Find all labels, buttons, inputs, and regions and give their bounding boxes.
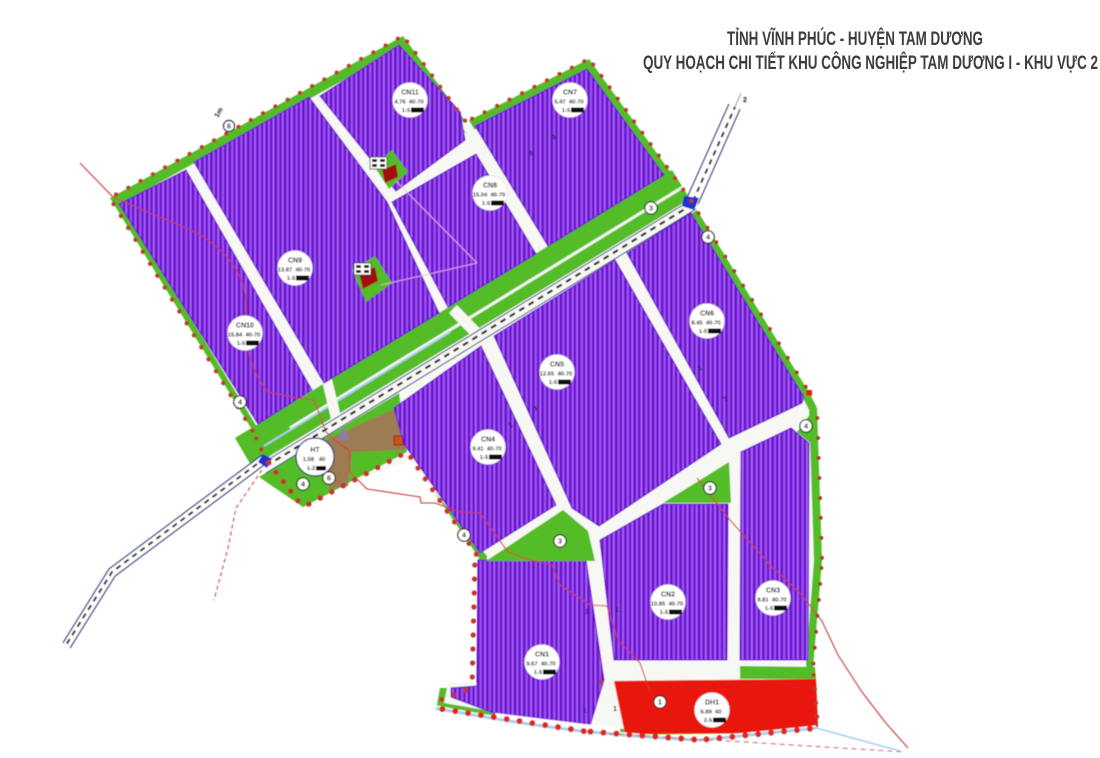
svg-text:9.67 40-70: 9.67 40-70 (526, 662, 555, 668)
svg-text:1-5: 1-5 (402, 108, 411, 114)
svg-text:1-5: 1-5 (549, 380, 558, 386)
svg-text:1-5: 1-5 (237, 341, 246, 347)
svg-text:5.47 40-70: 5.47 40-70 (554, 100, 583, 106)
svg-text:6: 6 (227, 122, 231, 131)
svg-text:3: 3 (649, 204, 653, 213)
svg-text:8.81 40-70: 8.81 40-70 (757, 598, 786, 604)
svg-text:CN9: CN9 (288, 258, 302, 265)
svg-text:2-5: 2-5 (704, 718, 713, 724)
svg-text:CN5: CN5 (550, 362, 564, 369)
svg-text:CN7: CN7 (563, 90, 577, 97)
svg-text:1: 1 (615, 607, 619, 614)
svg-text:1: 1 (658, 698, 662, 707)
svg-text:6.89 40: 6.89 40 (701, 710, 722, 716)
svg-text:4.76 40-70: 4.76 40-70 (394, 100, 423, 106)
svg-text:12.65 40-70: 12.65 40-70 (540, 372, 573, 378)
svg-text:1-5: 1-5 (699, 329, 708, 335)
svg-text:CN8: CN8 (483, 183, 497, 190)
svg-text:DH1: DH1 (705, 700, 719, 707)
svg-text:CN10: CN10 (236, 323, 254, 330)
svg-text:1-5: 1-5 (660, 610, 669, 616)
svg-text:CN4: CN4 (481, 437, 495, 444)
svg-text:1: 1 (613, 706, 617, 713)
svg-text:CN2: CN2 (661, 592, 675, 599)
svg-text:3: 3 (558, 537, 562, 546)
svg-text:1-5: 1-5 (482, 201, 491, 207)
svg-text:CN6: CN6 (700, 311, 714, 318)
svg-text:15.84 40-70: 15.84 40-70 (228, 333, 261, 339)
svg-text:6: 6 (327, 474, 331, 483)
svg-text:1.58 40: 1.58 40 (303, 457, 326, 463)
svg-text:10.85 40-70: 10.85 40-70 (651, 602, 684, 608)
svg-text:1-5: 1-5 (287, 276, 296, 282)
svg-text:CN3: CN3 (766, 588, 780, 595)
svg-text:8.45 40-70: 8.45 40-70 (691, 321, 720, 327)
svg-text:1-5: 1-5 (562, 108, 571, 114)
svg-text:1-5: 1-5 (765, 606, 774, 612)
svg-text:QUY HOẠCH CHI TIẾT KHU CÔNG NG: QUY HOẠCH CHI TIẾT KHU CÔNG NGHIỆP TAM D… (643, 50, 1098, 74)
svg-text:1-5: 1-5 (480, 455, 489, 461)
svg-text:CN1: CN1 (535, 652, 549, 659)
svg-text:3: 3 (708, 484, 712, 493)
svg-text:2: 2 (743, 97, 747, 104)
svg-text:15.04 40-70: 15.04 40-70 (473, 193, 506, 199)
svg-text:1-2: 1-2 (307, 466, 315, 472)
svg-text:1: 1 (585, 609, 589, 616)
svg-text:1: 1 (583, 708, 587, 715)
svg-text:1-5: 1-5 (534, 670, 543, 676)
svg-text:HT: HT (310, 447, 320, 454)
svg-text:9.41 40-70: 9.41 40-70 (472, 447, 501, 453)
svg-text:CN11: CN11 (401, 90, 419, 97)
svg-text:TỈNH VĨNH PHÚC - HUYỆN TAM DƯƠ: TỈNH VĨNH PHÚC - HUYỆN TAM DƯƠNG (727, 26, 983, 50)
svg-text:13.87 40-70: 13.87 40-70 (278, 268, 311, 274)
